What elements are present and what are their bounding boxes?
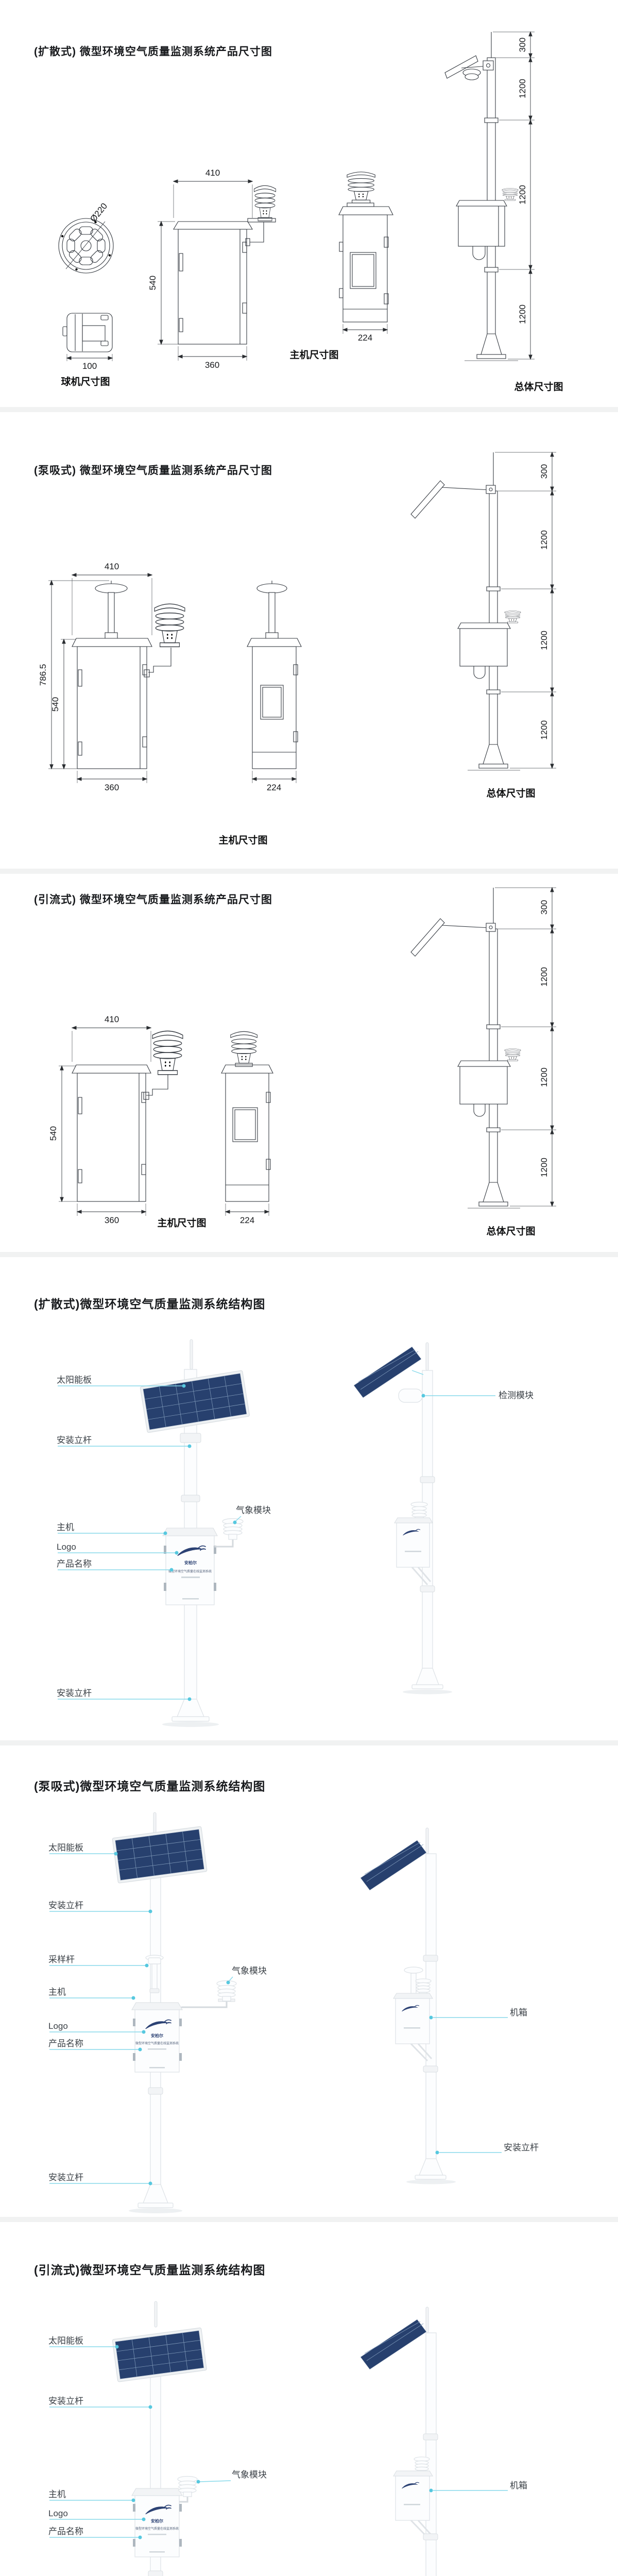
- weather-sensor-icon: [502, 188, 518, 200]
- label-detection-module: 检测模块: [499, 1391, 534, 1400]
- weather-module: [181, 1981, 236, 2008]
- label-mount-pole: 安装立杆: [48, 2396, 83, 2406]
- section-divider: [0, 407, 618, 412]
- dim-cab-height: 540: [148, 276, 158, 290]
- dim-top-width: 410: [205, 168, 220, 178]
- station-side-render: 机箱 安装立杆: [360, 2307, 539, 2576]
- label-chassis: 机箱: [510, 2008, 527, 2018]
- cabinet: [460, 1066, 507, 1104]
- solar-panel: [411, 919, 444, 956]
- section-divider: [0, 2217, 618, 2222]
- cabinet: [460, 629, 507, 666]
- label-mount-pole: 安装立杆: [48, 1901, 83, 1910]
- dim-total-height: 786.5: [38, 664, 48, 686]
- ball-camera-top-view: Ø220: [59, 201, 113, 273]
- label-mount-pole: 安装立杆: [57, 1688, 92, 1698]
- sampling-head-icon: [257, 584, 287, 593]
- caption-overall: 总体尺寸图: [486, 787, 535, 799]
- cabinet-roof: [132, 2003, 182, 2010]
- dim-seg: 1200: [539, 967, 549, 987]
- dim-ball-width: 100: [82, 361, 97, 371]
- cabinet: [458, 206, 505, 246]
- label-solar-panel: 太阳能板: [57, 1375, 92, 1385]
- dim-rod: 300: [539, 900, 549, 914]
- dim-seg: 1200: [518, 185, 527, 205]
- dim-side-depth: 224: [240, 1215, 254, 1225]
- label-main-unit: 主机: [57, 1522, 74, 1532]
- speaker-grill-icon: [67, 227, 105, 265]
- cabinet-roof: [163, 1528, 217, 1536]
- diffusion-dimension-drawing: Ø220 100 球机尺寸图: [0, 0, 618, 407]
- dim-seg: 1200: [539, 530, 549, 550]
- drainage-dimension-drawing: 410 540 360 224 主机尺寸图: [0, 874, 618, 1252]
- station-side-render: 检测模块: [354, 1343, 534, 1694]
- label-product-name: 产品名称: [48, 2527, 83, 2536]
- section-divider: [0, 1740, 618, 1745]
- label-mount-pole: 安装立杆: [48, 2173, 83, 2182]
- caption-overall: 总体尺寸图: [486, 1225, 535, 1237]
- drainage-structure-render: 安柏尔 微型环境空气质量在线监测系统 太阳能板 安装立杆 主机: [0, 2222, 618, 2576]
- lightning-rod-icon: [190, 1340, 193, 1369]
- overall-view: 300 1200 1200 1200 总体尺寸图: [411, 452, 556, 799]
- dim-side-depth: 224: [358, 333, 372, 343]
- label-logo: Logo: [57, 1542, 76, 1552]
- solar-panel: [140, 1370, 250, 1433]
- station-front-render: 安柏尔 微型环境空气质量在线监测系统: [112, 2301, 207, 2576]
- label-main-unit: 主机: [48, 1987, 66, 1997]
- ball-camera-side-view: 100 球机尺寸图: [61, 313, 112, 387]
- caption-overall: 总体尺寸图: [514, 381, 563, 393]
- brand-name: 安柏尔: [151, 2518, 163, 2523]
- cabinet-product-name: 微型环境空气质量在线监测系统: [168, 1569, 212, 1573]
- dim-seg: 1200: [539, 1067, 549, 1087]
- dim-top-width: 410: [105, 1014, 119, 1024]
- label-chassis: 机箱: [510, 2481, 527, 2490]
- lightning-rod-icon: [426, 1343, 428, 1370]
- section-divider: [0, 869, 618, 874]
- cabinet: [396, 1998, 430, 2044]
- dim-cab-height: 540: [48, 1126, 58, 1141]
- dim-cab-width: 360: [205, 360, 219, 370]
- label-product-name: 产品名称: [48, 2039, 83, 2048]
- label-weather-module: 气象模块: [236, 1505, 271, 1515]
- diffusion-structure-render: 安柏尔 微型环境空气质量在线监测系统 太阳能板 安装立杆 主机: [0, 1257, 618, 1740]
- caption-main-unit: 主机尺寸图: [157, 1217, 206, 1229]
- label-logo: Logo: [48, 2021, 68, 2031]
- dim-side-depth: 224: [267, 783, 281, 792]
- caption-main-unit: 主机尺寸图: [218, 834, 267, 846]
- page: (扩散式) 微型环境空气质量监测系统产品尺寸图 (泵吸式) 微型环境空气质量监测…: [0, 0, 618, 2576]
- cabinet: [396, 2476, 430, 2520]
- solar-panel: [411, 481, 444, 518]
- station-side-render: 机箱 安装立杆: [360, 1828, 539, 2184]
- brand-name: 安柏尔: [184, 1560, 197, 1565]
- main-unit-front-view: 410 786.5 540 360: [38, 562, 185, 792]
- dim-cab-width: 360: [105, 783, 119, 792]
- pole-clamp: [148, 2088, 163, 2094]
- main-unit-side-view: 224 主机尺寸图: [218, 581, 301, 846]
- weather-sensor-icon: [231, 1031, 257, 1066]
- sampling-head-icon: [95, 584, 127, 593]
- dim-seg: 1200: [539, 1158, 549, 1177]
- label-solar-panel: 太阳能板: [48, 1843, 83, 1853]
- weather-module: [178, 2477, 197, 2502]
- label-mount-pole: 安装立杆: [504, 2143, 539, 2153]
- label-weather-module: 气象模块: [232, 2470, 267, 2480]
- main-unit-cabinet: [135, 2010, 179, 2072]
- dim-cab-height: 540: [50, 697, 60, 711]
- label-solar-panel: 太阳能板: [48, 2336, 83, 2346]
- weather-sensor-icon: [154, 604, 185, 647]
- label-sampling-rod: 采样杆: [48, 1955, 75, 1964]
- brand-name: 安柏尔: [151, 2033, 163, 2038]
- caption-main-unit: 主机尺寸图: [289, 349, 338, 361]
- cabinet-roof: [132, 2488, 182, 2496]
- dim-seg: 1200: [539, 631, 549, 650]
- lightning-rod-icon: [426, 1828, 428, 1854]
- dim-top-width: 410: [105, 562, 119, 571]
- pole-clamp: [423, 2434, 438, 2440]
- dim-rod: 300: [539, 464, 549, 479]
- dim-seg: 1200: [539, 720, 549, 740]
- label-mount-pole: 安装立杆: [57, 1435, 92, 1445]
- caption-ball-view: 球机尺寸图: [61, 376, 110, 387]
- weather-sensor-icon: [505, 1048, 521, 1061]
- main-unit-front-view: 410 540 360: [148, 168, 276, 370]
- cabinet-product-name: 微型环境空气质量在线监测系统: [135, 2527, 179, 2531]
- pole-clamp: [148, 2571, 163, 2576]
- lightning-rod-icon: [426, 2307, 428, 2333]
- label-main-unit: 主机: [48, 2489, 66, 2499]
- weather-sensor-icon: [254, 185, 276, 221]
- dim-cab-width: 360: [105, 1215, 119, 1225]
- overall-view: 300 1200 1200 1200 总体尺寸图: [445, 32, 563, 393]
- dim-rod: 300: [518, 38, 527, 52]
- lightning-rod-icon: [154, 2301, 157, 2327]
- label-product-name: 产品名称: [57, 1559, 92, 1569]
- overall-view: 300 1200 1200 1200 总体尺寸图: [411, 888, 556, 1237]
- weather-module: [214, 1519, 243, 1547]
- main-unit-side-view: 224 主机尺寸图: [289, 172, 393, 361]
- solar-panel: [360, 1840, 426, 1890]
- detection-module: [399, 1389, 422, 1402]
- weather-sensor-icon: [347, 172, 375, 203]
- dim-seg: 1200: [518, 79, 527, 98]
- sensor-bracket: [248, 218, 276, 222]
- section-divider: [0, 1252, 618, 1257]
- pump-dimension-drawing: 410 786.5 540 360: [0, 412, 618, 869]
- weather-sensor-icon: [152, 1031, 183, 1074]
- label-weather-module: 气象模块: [232, 1966, 267, 1976]
- dim-seg: 1200: [518, 304, 527, 324]
- station-front-render: 安柏尔 微型环境空气质量在线监测系统: [112, 1812, 236, 2213]
- solar-panel: [112, 1826, 207, 1883]
- main-unit-front-view: 410 540 360: [48, 1014, 183, 1225]
- main-unit-cabinet: [135, 2496, 179, 2557]
- label-logo: Logo: [48, 2509, 68, 2518]
- cabinet: [397, 1523, 430, 1567]
- pump-structure-render: 安柏尔 微型环境空气质量在线监测系统 太阳能板 安装立杆: [0, 1745, 618, 2217]
- solar-panel: [112, 2328, 207, 2382]
- weather-sensor-icon: [505, 611, 521, 623]
- pole-clamp: [423, 1955, 438, 1961]
- cabinet-product-name: 微型环境空气质量在线监测系统: [135, 2041, 179, 2045]
- dim-ball-diameter: Ø220: [88, 201, 109, 224]
- solar-panel: [360, 2319, 426, 2369]
- pole-clamp: [181, 1495, 200, 1502]
- pole-clamp: [420, 1477, 435, 1483]
